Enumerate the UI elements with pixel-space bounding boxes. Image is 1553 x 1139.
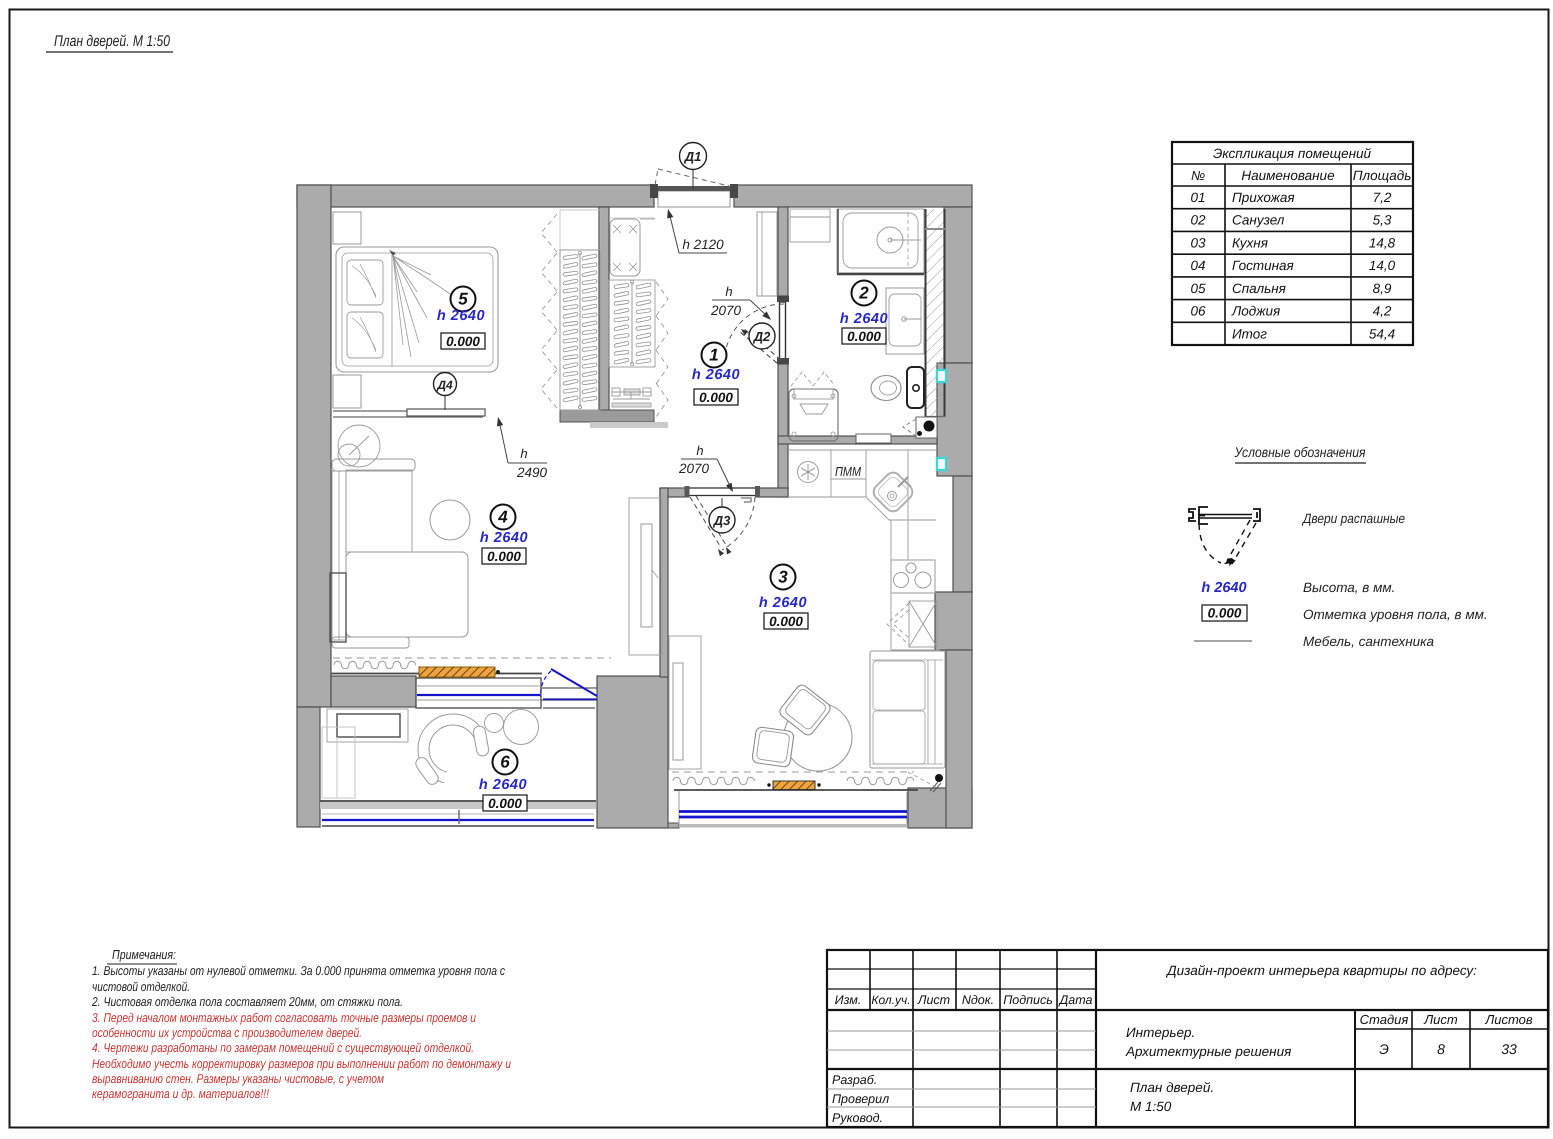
svg-text:8: 8 — [1437, 1041, 1445, 1057]
svg-text:05: 05 — [1190, 281, 1206, 296]
svg-text:0.000: 0.000 — [1208, 606, 1242, 621]
svg-text:Спальня: Спальня — [1232, 281, 1286, 296]
svg-text:2070: 2070 — [678, 461, 710, 476]
svg-text:6: 6 — [500, 753, 510, 772]
svg-text:h 2120: h 2120 — [682, 237, 724, 252]
svg-text:Дизайн-проект интерьера кварти: Дизайн-проект интерьера квартиры по адре… — [1165, 963, 1477, 978]
svg-text:14,0: 14,0 — [1369, 258, 1396, 273]
svg-text:5,3: 5,3 — [1373, 213, 1392, 228]
svg-text:Э: Э — [1379, 1041, 1389, 1057]
svg-text:2. Чистовая отделка пола соста: 2. Чистовая отделка пола составляет 20мм… — [91, 994, 403, 1009]
svg-text:Изм.: Изм. — [835, 993, 862, 1007]
svg-text:Итог: Итог — [1232, 326, 1267, 341]
svg-text:Двери распашные: Двери распашные — [1301, 511, 1405, 526]
svg-text:3: 3 — [778, 568, 788, 587]
svg-text:Прихожая: Прихожая — [1232, 190, 1295, 205]
svg-text:2: 2 — [858, 284, 869, 303]
svg-text:2070: 2070 — [710, 303, 742, 318]
svg-text:2490: 2490 — [516, 465, 548, 480]
svg-text:h: h — [520, 446, 527, 461]
svg-text:Кол.уч.: Кол.уч. — [871, 993, 910, 1007]
svg-text:Проверил: Проверил — [832, 1092, 889, 1106]
svg-text:0.000: 0.000 — [446, 334, 480, 349]
svg-text:06: 06 — [1190, 304, 1206, 319]
svg-text:h 2640: h 2640 — [479, 777, 527, 793]
svg-text:h: h — [696, 443, 703, 458]
svg-text:0.000: 0.000 — [769, 614, 803, 629]
svg-text:0.000: 0.000 — [699, 390, 733, 405]
svg-text:Лоджия: Лоджия — [1231, 304, 1280, 319]
svg-text:выравниванию стен. Размеры ука: выравниванию стен. Размеры указаны чисто… — [92, 1071, 384, 1086]
svg-text:7,2: 7,2 — [1373, 190, 1392, 205]
svg-text:Лист: Лист — [1423, 1012, 1458, 1027]
svg-text:h 2640: h 2640 — [759, 595, 807, 611]
svg-text:Руковод.: Руковод. — [832, 1111, 883, 1125]
svg-text:Условные обозначения: Условные обозначения — [1234, 444, 1366, 460]
svg-text:План дверей.: План дверей. — [1130, 1080, 1214, 1095]
svg-text:Санузел: Санузел — [1232, 213, 1285, 228]
svg-text:0.000: 0.000 — [847, 329, 881, 344]
svg-text:Д3: Д3 — [713, 513, 731, 528]
svg-text:М 1:50: М 1:50 — [1130, 1099, 1172, 1114]
svg-text:02: 02 — [1190, 213, 1206, 228]
svg-text:ПММ: ПММ — [835, 464, 861, 479]
svg-text:8,9: 8,9 — [1373, 281, 1392, 296]
svg-text:Д2: Д2 — [753, 329, 771, 344]
svg-text:Кухня: Кухня — [1232, 235, 1268, 250]
svg-text:особенности их устройства с пр: особенности их устройства с производител… — [92, 1025, 362, 1040]
svg-text:Д4: Д4 — [436, 378, 453, 392]
svg-text:h 2640: h 2640 — [840, 311, 888, 327]
svg-text:План дверей. М 1:50: План дверей. М 1:50 — [54, 33, 170, 50]
svg-text:Отметка уровня пола, в мм.: Отметка уровня пола, в мм. — [1303, 607, 1488, 622]
svg-text:Лист: Лист — [917, 993, 950, 1007]
svg-text:14,8: 14,8 — [1369, 235, 1396, 250]
svg-text:Архитектурные решения: Архитектурные решения — [1125, 1044, 1291, 1059]
svg-text:Мебель, сантехника: Мебель, сантехника — [1303, 634, 1435, 649]
svg-text:33: 33 — [1501, 1041, 1517, 1057]
svg-text:h: h — [725, 284, 732, 299]
svg-text:h 2640: h 2640 — [1201, 580, 1246, 596]
svg-text:01: 01 — [1190, 190, 1205, 205]
svg-text:54,4: 54,4 — [1369, 326, 1395, 341]
svg-text:Интерьер.: Интерьер. — [1126, 1025, 1195, 1040]
svg-text:Площадь: Площадь — [1353, 168, 1412, 183]
svg-text:Листов: Листов — [1484, 1012, 1533, 1027]
svg-text:Стадия: Стадия — [1360, 1012, 1409, 1027]
svg-text:1: 1 — [709, 346, 718, 365]
svg-text:4,2: 4,2 — [1373, 304, 1392, 319]
svg-text:1. Высоты указаны от нулевой о: 1. Высоты указаны от нулевой отметки. За… — [92, 963, 505, 978]
svg-text:чистовой отделкой.: чистовой отделкой. — [92, 979, 190, 994]
svg-text:Необходимо учесть корректировк: Необходимо учесть корректировку размеров… — [92, 1056, 511, 1071]
svg-text:3. Перед началом монтажных раб: 3. Перед началом монтажных работ согласо… — [92, 1010, 476, 1025]
svg-text:Примечания:: Примечания: — [112, 947, 176, 962]
svg-text:Экспликация помещений: Экспликация помещений — [1213, 146, 1372, 161]
svg-text:№: № — [1191, 168, 1205, 183]
svg-text:Дата: Дата — [1058, 993, 1093, 1007]
svg-text:h 2640: h 2640 — [692, 367, 740, 383]
svg-text:04: 04 — [1190, 258, 1205, 273]
svg-text:0.000: 0.000 — [487, 549, 521, 564]
svg-text:Наименование: Наименование — [1241, 168, 1334, 183]
svg-text:h 2640: h 2640 — [437, 308, 485, 324]
svg-text:0.000: 0.000 — [488, 796, 522, 811]
svg-text:h 2640: h 2640 — [480, 530, 528, 546]
svg-text:03: 03 — [1190, 235, 1206, 250]
svg-text:керамогранита и др. материалов: керамогранита и др. материалов!!! — [92, 1086, 269, 1101]
svg-text:Подпись: Подпись — [1003, 993, 1053, 1007]
svg-text:Nдок.: Nдок. — [962, 993, 994, 1007]
svg-text:5: 5 — [458, 290, 468, 309]
svg-text:4. Чертежи разработаны по заме: 4. Чертежи разработаны по замерам помеще… — [92, 1040, 474, 1055]
svg-text:Д1: Д1 — [684, 149, 702, 164]
svg-text:Разраб.: Разраб. — [832, 1073, 877, 1087]
svg-text:Гостиная: Гостиная — [1232, 258, 1294, 273]
svg-text:Высота, в мм.: Высота, в мм. — [1303, 580, 1395, 595]
svg-text:4: 4 — [497, 508, 508, 527]
